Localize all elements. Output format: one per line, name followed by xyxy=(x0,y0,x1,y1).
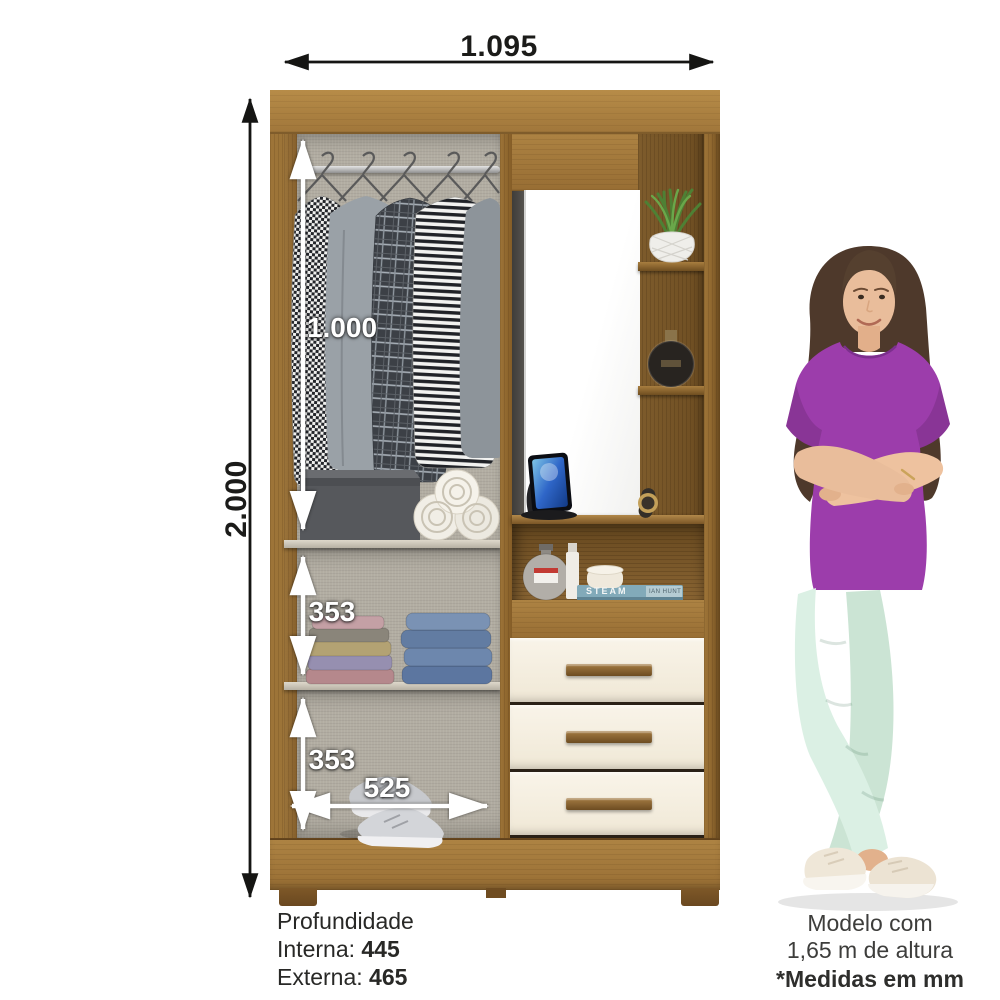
depth-externa-label: Externa: xyxy=(277,964,369,990)
center-foot xyxy=(486,888,506,898)
niche-ledge xyxy=(512,600,704,640)
depth-interna-value: 445 xyxy=(361,936,399,962)
book-spine-author: IAN HUNT xyxy=(649,589,681,595)
units-footnote: *Medidas em mm xyxy=(760,966,980,993)
shelf-board-1 xyxy=(284,540,500,548)
floor-shadow xyxy=(778,893,958,911)
depth-externa-value: 465 xyxy=(369,964,407,990)
right-outer-panel xyxy=(704,132,720,838)
model-note-line2: 1,65 m de altura xyxy=(760,937,980,964)
depth-externa-row: Externa: 465 xyxy=(277,963,414,991)
mirror xyxy=(524,190,640,518)
shelf-column-back xyxy=(638,132,704,518)
vanity-shelf xyxy=(512,515,704,524)
right-leg xyxy=(681,888,719,906)
depth-interna-label: Interna: xyxy=(277,936,361,962)
model-note-line1: Modelo com xyxy=(760,910,980,937)
drawer-3-handle[interactable] xyxy=(566,798,652,810)
height-dimension-label: 2.000 xyxy=(220,429,254,569)
model-height-note: Modelo com 1,65 m de altura xyxy=(760,910,980,964)
drawer-2-handle[interactable] xyxy=(566,731,652,743)
hanging-height-label: 1.000 xyxy=(282,312,402,344)
width-dimension-label: 1.095 xyxy=(429,30,569,64)
depth-info-block: Profundidade Interna: 445 Externa: 465 xyxy=(277,907,414,991)
wardrobe-dimension-diagram: 1.095 2.000 1.000 353 353 525 STEAM IAN … xyxy=(0,0,1000,1000)
hanging-rod xyxy=(296,166,500,173)
column-shelf-top xyxy=(638,262,704,271)
shelf-1-height-label: 353 xyxy=(272,596,392,628)
top-panel xyxy=(270,90,720,134)
model-woman xyxy=(786,246,950,898)
drawer-1-handle[interactable] xyxy=(566,664,652,676)
left-leg xyxy=(279,888,317,906)
book-spine-title: STEAM xyxy=(586,586,628,596)
depth-interna-row: Interna: 445 xyxy=(277,935,414,963)
depth-title: Profundidade xyxy=(277,907,414,935)
column-shelf-middle xyxy=(638,386,704,395)
base-panel xyxy=(270,838,720,890)
left-inner-wall xyxy=(284,132,297,838)
shelf-board-2 xyxy=(284,682,500,690)
interior-width-label: 525 xyxy=(327,772,447,804)
